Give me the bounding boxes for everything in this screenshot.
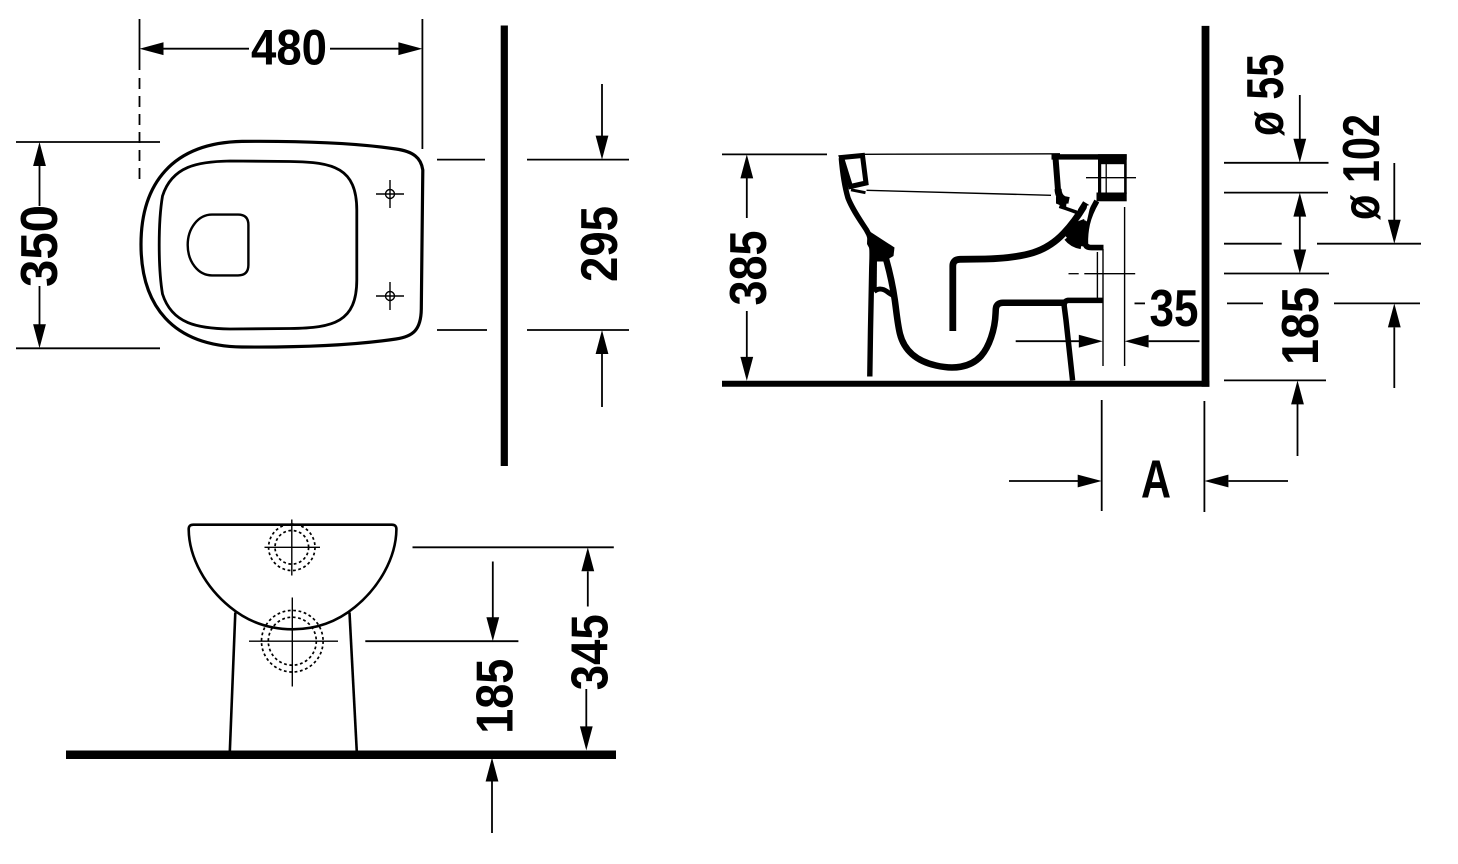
svg-text:295: 295 <box>571 206 629 282</box>
svg-text:345: 345 <box>562 614 620 690</box>
svg-text:350: 350 <box>11 205 69 287</box>
svg-text:A: A <box>1141 450 1171 510</box>
svg-text:185: 185 <box>466 659 524 734</box>
svg-text:ø 55: ø 55 <box>1237 54 1295 136</box>
svg-text:ø 102: ø 102 <box>1333 114 1391 220</box>
svg-text:185: 185 <box>1272 287 1330 365</box>
svg-text:480: 480 <box>251 19 327 75</box>
svg-text:385: 385 <box>720 231 778 306</box>
svg-text:35: 35 <box>1150 280 1199 338</box>
